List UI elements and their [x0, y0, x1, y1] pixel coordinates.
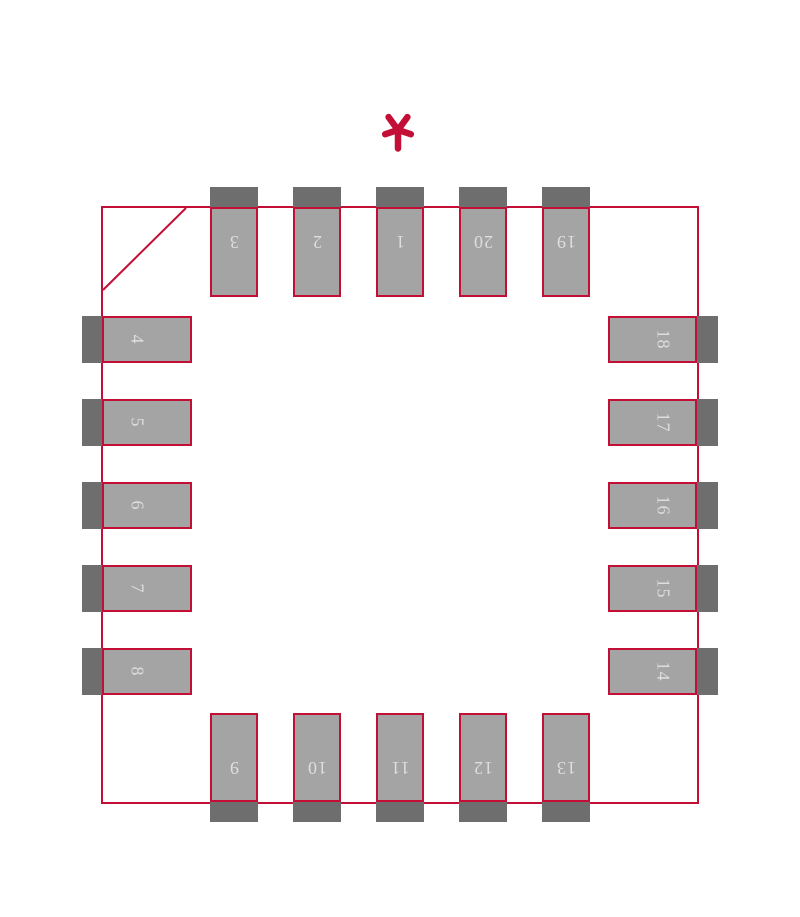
pad-1: 1	[376, 187, 424, 297]
pad-7: 7	[82, 565, 192, 612]
pad-3-number: 3	[210, 187, 258, 297]
pad-17: 17	[608, 399, 718, 446]
pad-2-number: 2	[293, 187, 341, 297]
pad-20-number: 20	[459, 187, 507, 297]
pad-9: 9	[210, 713, 258, 822]
pad-2: 2	[293, 187, 341, 297]
pad-10-number: 10	[293, 713, 341, 822]
pad-19: 19	[542, 187, 590, 297]
pad-8-mask-extension	[82, 648, 102, 695]
pad-18: 18	[608, 316, 718, 363]
pad-3: 3	[210, 187, 258, 297]
pad-7-mask-extension	[82, 565, 102, 612]
pad-6: 6	[82, 482, 192, 529]
pad-1-number: 1	[376, 187, 424, 297]
pad-13-number: 13	[542, 713, 590, 822]
pad-12-number: 12	[459, 713, 507, 822]
pin1-marker-icon	[385, 117, 411, 148]
pad-6-mask-extension	[82, 482, 102, 529]
pad-15-mask-extension	[697, 565, 718, 612]
pad-14: 14	[608, 648, 718, 695]
pad-14-mask-extension	[697, 648, 718, 695]
pad-14-number: 14	[640, 617, 687, 727]
pad-8: 8	[82, 648, 192, 695]
pad-4: 4	[82, 316, 192, 363]
pad-4-mask-extension	[82, 316, 102, 363]
pad-8-number: 8	[114, 617, 161, 727]
pad-16-mask-extension	[697, 482, 718, 529]
footprint-canvas: 3 2 1 20 19 4 5 6 7	[0, 0, 800, 917]
pad-17-mask-extension	[697, 399, 718, 446]
pad-12: 12	[459, 713, 507, 822]
pad-18-mask-extension	[697, 316, 718, 363]
pad-5: 5	[82, 399, 192, 446]
pad-13: 13	[542, 713, 590, 822]
pad-15: 15	[608, 565, 718, 612]
pad-5-mask-extension	[82, 399, 102, 446]
pad-9-number: 9	[210, 713, 258, 822]
pad-20: 20	[459, 187, 507, 297]
pad-11-number: 11	[376, 713, 424, 822]
pad-10: 10	[293, 713, 341, 822]
pad-11: 11	[376, 713, 424, 822]
pad-19-number: 19	[542, 187, 590, 297]
pad-16: 16	[608, 482, 718, 529]
